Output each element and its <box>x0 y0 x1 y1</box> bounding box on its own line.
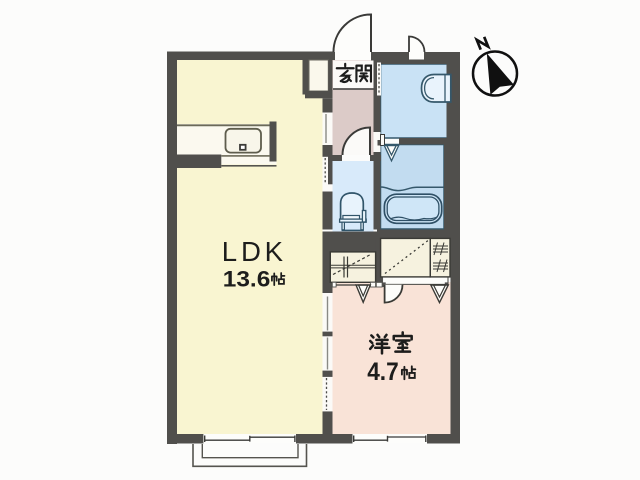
svg-text:LDK: LDK <box>222 236 287 267</box>
svg-text:13.6: 13.6 <box>223 267 270 292</box>
svg-text:4.7: 4.7 <box>367 358 399 386</box>
